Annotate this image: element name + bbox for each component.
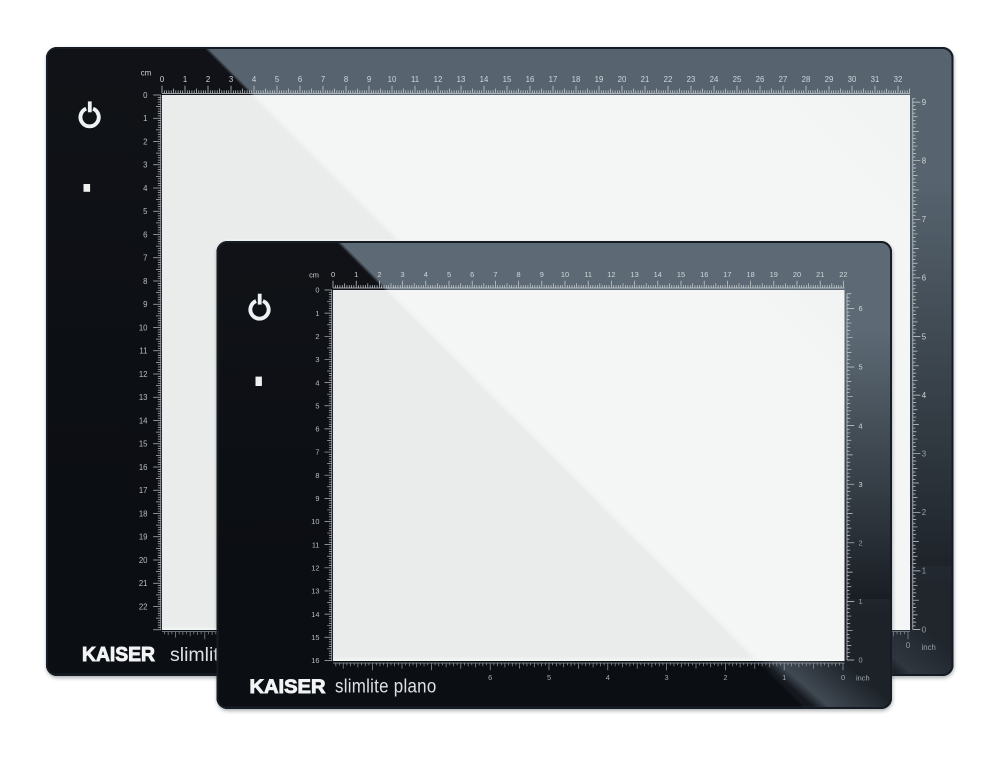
svg-text:5: 5: [143, 207, 148, 216]
svg-text:10: 10: [561, 270, 569, 279]
svg-text:2: 2: [315, 332, 319, 341]
svg-text:9: 9: [367, 75, 371, 84]
svg-text:3: 3: [665, 673, 669, 682]
svg-text:1: 1: [354, 270, 358, 279]
svg-text:5: 5: [547, 673, 551, 682]
svg-text:17: 17: [139, 486, 148, 495]
svg-text:4: 4: [606, 673, 610, 682]
svg-text:20: 20: [139, 556, 148, 565]
svg-text:0: 0: [315, 286, 319, 295]
svg-text:inch: inch: [922, 643, 936, 652]
svg-text:5: 5: [447, 270, 451, 279]
svg-text:17: 17: [549, 75, 558, 84]
svg-text:2: 2: [206, 75, 210, 84]
svg-text:6: 6: [488, 673, 492, 682]
svg-text:15: 15: [503, 75, 512, 84]
svg-text:4: 4: [143, 184, 148, 193]
svg-text:18: 18: [139, 509, 148, 518]
svg-text:KAISER: KAISER: [250, 676, 326, 698]
svg-text:15: 15: [139, 440, 148, 449]
svg-text:12: 12: [139, 370, 148, 379]
svg-text:26: 26: [756, 75, 765, 84]
svg-text:28: 28: [802, 75, 811, 84]
svg-text:14: 14: [654, 270, 662, 279]
svg-text:4: 4: [315, 378, 319, 387]
svg-text:15: 15: [311, 633, 319, 642]
svg-text:5: 5: [859, 363, 863, 372]
svg-text:19: 19: [770, 270, 778, 279]
svg-text:10: 10: [139, 323, 148, 332]
svg-text:1: 1: [315, 309, 319, 318]
svg-text:0: 0: [859, 656, 863, 665]
svg-text:11: 11: [139, 347, 147, 356]
svg-text:1: 1: [922, 567, 926, 576]
svg-text:8: 8: [315, 471, 319, 480]
svg-text:23: 23: [687, 75, 696, 84]
svg-text:6: 6: [922, 274, 926, 283]
svg-text:22: 22: [839, 270, 847, 279]
svg-text:16: 16: [700, 270, 708, 279]
svg-text:6: 6: [470, 270, 474, 279]
svg-text:32: 32: [894, 75, 903, 84]
svg-text:4: 4: [252, 75, 257, 84]
svg-text:2: 2: [859, 539, 863, 548]
svg-text:0: 0: [143, 91, 148, 100]
svg-text:4: 4: [424, 270, 428, 279]
svg-text:17: 17: [723, 270, 731, 279]
svg-text:3: 3: [315, 355, 319, 364]
svg-text:10: 10: [311, 517, 319, 526]
svg-text:10: 10: [388, 75, 397, 84]
svg-text:4: 4: [922, 391, 927, 400]
svg-text:3: 3: [229, 75, 233, 84]
svg-text:9: 9: [540, 270, 544, 279]
svg-text:12: 12: [311, 564, 319, 573]
svg-text:22: 22: [139, 602, 148, 611]
svg-text:22: 22: [664, 75, 673, 84]
svg-text:inch: inch: [856, 673, 870, 682]
svg-text:6: 6: [859, 304, 863, 313]
svg-text:8: 8: [517, 270, 521, 279]
svg-text:7: 7: [143, 254, 147, 263]
svg-text:1: 1: [143, 114, 147, 123]
svg-text:13: 13: [139, 393, 148, 402]
svg-text:6: 6: [143, 230, 147, 239]
svg-text:7: 7: [315, 448, 319, 457]
svg-text:1: 1: [859, 597, 863, 606]
svg-text:12: 12: [607, 270, 615, 279]
svg-text:21: 21: [139, 579, 148, 588]
svg-text:1: 1: [782, 673, 786, 682]
svg-text:9: 9: [315, 494, 319, 503]
svg-text:12: 12: [434, 75, 443, 84]
svg-text:27: 27: [779, 75, 788, 84]
svg-text:11: 11: [584, 270, 592, 279]
svg-text:4: 4: [859, 421, 863, 430]
svg-text:0: 0: [922, 625, 927, 634]
svg-text:2: 2: [723, 673, 727, 682]
svg-text:8: 8: [344, 75, 348, 84]
svg-text:9: 9: [143, 300, 147, 309]
svg-text:3: 3: [922, 450, 926, 459]
svg-text:24: 24: [710, 75, 719, 84]
svg-text:16: 16: [139, 463, 148, 472]
svg-text:21: 21: [641, 75, 650, 84]
svg-text:11: 11: [312, 540, 320, 549]
svg-text:14: 14: [480, 75, 489, 84]
svg-text:30: 30: [848, 75, 857, 84]
svg-text:7: 7: [321, 75, 325, 84]
svg-text:1: 1: [183, 75, 187, 84]
svg-text:5: 5: [315, 401, 319, 410]
svg-text:8: 8: [922, 157, 926, 166]
svg-text:14: 14: [139, 416, 148, 425]
svg-text:slimlite plano: slimlite plano: [335, 677, 437, 698]
svg-text:7: 7: [493, 270, 497, 279]
svg-text:20: 20: [793, 270, 801, 279]
svg-text:3: 3: [143, 161, 147, 170]
svg-text:6: 6: [315, 425, 319, 434]
svg-text:6: 6: [298, 75, 302, 84]
svg-text:2: 2: [377, 270, 381, 279]
svg-text:19: 19: [139, 533, 148, 542]
svg-text:0: 0: [331, 270, 335, 279]
svg-text:14: 14: [311, 610, 319, 619]
svg-text:16: 16: [526, 75, 535, 84]
svg-text:19: 19: [595, 75, 604, 84]
svg-text:5: 5: [922, 332, 927, 341]
svg-text:29: 29: [825, 75, 834, 84]
svg-text:13: 13: [630, 270, 638, 279]
svg-text:18: 18: [746, 270, 754, 279]
svg-text:8: 8: [143, 277, 147, 286]
svg-text:13: 13: [311, 587, 319, 596]
svg-text:21: 21: [816, 270, 824, 279]
svg-text:9: 9: [922, 98, 926, 107]
svg-text:0: 0: [841, 673, 845, 682]
svg-text:11: 11: [411, 75, 419, 84]
svg-text:31: 31: [871, 75, 880, 84]
svg-text:2: 2: [143, 137, 147, 146]
svg-text:15: 15: [677, 270, 685, 279]
svg-text:cm: cm: [309, 270, 319, 279]
svg-text:cm: cm: [141, 69, 151, 78]
svg-text:16: 16: [311, 656, 319, 665]
svg-text:5: 5: [275, 75, 280, 84]
svg-text:3: 3: [859, 480, 863, 489]
svg-text:2: 2: [922, 508, 926, 517]
svg-text:18: 18: [572, 75, 581, 84]
svg-text:0: 0: [906, 641, 911, 650]
svg-text:KAISER: KAISER: [82, 644, 156, 666]
svg-text:20: 20: [618, 75, 627, 84]
svg-text:0: 0: [160, 75, 165, 84]
svg-text:25: 25: [733, 75, 742, 84]
svg-text:7: 7: [922, 215, 926, 224]
svg-text:13: 13: [457, 75, 466, 84]
svg-text:3: 3: [401, 270, 405, 279]
